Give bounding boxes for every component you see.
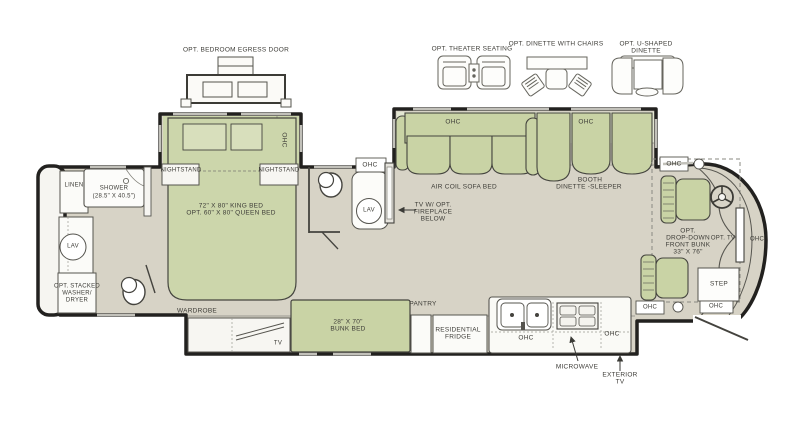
label-bunk-bed: BUNK BED <box>330 326 365 333</box>
label-galley-ohc-right: OHC <box>604 331 619 338</box>
label-galley-ohc-left: OHC <box>518 335 533 342</box>
label-washer-dryer: DRYER <box>66 298 88 305</box>
label-residential-fridge: FRIDGE <box>445 334 471 341</box>
label-opt-bedroom-egress-door: OPT. BEDROOM EGRESS DOOR <box>183 47 289 54</box>
label-opt-u-shaped-dinette: DINETTE <box>631 48 661 55</box>
label-shower: SHOWER <box>100 186 129 193</box>
label-tv-fireplace: BELOW <box>421 216 446 223</box>
label-front-bunk: FRONT BUNK <box>666 242 711 249</box>
label-exterior-tv: EXTERIOR <box>602 372 637 379</box>
label-pantry: PANTRY <box>409 301 436 308</box>
label-residential-fridge: RESIDENTIAL <box>435 327 480 334</box>
label-wardrobe: WARDROBE <box>177 308 217 315</box>
label-entry-ohc-left: OHC <box>643 305 657 312</box>
label-sofa-ohc: OHC <box>445 119 460 126</box>
label-front-bunk: DROP-DOWN <box>666 235 710 242</box>
label-air-coil-sofa-bed: AIR COIL SOFA BED <box>431 184 497 191</box>
label-mid-lav: LAV <box>363 208 375 215</box>
label-nightstand-left: NIGHTSTAND <box>160 168 201 175</box>
label-opt-tv: OPT. TV <box>711 236 735 243</box>
label-opt-dinette-with-chairs: OPT. DINETTE WITH CHAIRS <box>509 41 604 48</box>
label-nightstand-right: NIGHTSTAND <box>258 168 299 175</box>
label-booth-ohc: OHC <box>578 119 593 126</box>
label-tv-fireplace: FIREPLACE <box>414 209 452 216</box>
label-tv-fireplace: TV W/ OPT. <box>415 202 452 209</box>
label-opt-theater-seating: OPT. THEATER SEATING <box>432 46 513 53</box>
label-step: STEP <box>710 281 728 288</box>
label-front-bunk: OPT. <box>680 228 695 235</box>
label-entry-ohc-right: OHC <box>709 304 723 311</box>
label-front-bunk: 33" X 76" <box>673 249 702 256</box>
label-cab-ohc: OHC <box>666 161 681 168</box>
label-shower-size: (28.5" X 40.5") <box>93 194 136 201</box>
label-king-bed: 72" X 80" KING BED <box>199 203 263 210</box>
label-booth-dinette: BOOTH <box>578 177 602 184</box>
label-booth-dinette: DINETTE -SLEEPER <box>556 184 622 191</box>
rv-floorplan: OPT. BEDROOM EGRESS DOOR OPT. THEATER SE… <box>0 0 800 421</box>
label-king-bed: OPT. 60" X 80" QUEEN BED <box>186 210 275 217</box>
label-linen: LINEN <box>65 183 84 190</box>
label-bedroom-slide-ohc: OHC <box>281 132 288 147</box>
label-opt-u-shaped-dinette: OPT. U-SHAPED <box>619 41 672 48</box>
label-bunk-bed: 28" X 70" <box>333 319 362 326</box>
floorplan-labels: OPT. BEDROOM EGRESS DOOR OPT. THEATER SE… <box>0 0 800 421</box>
label-rear-lav: LAV <box>67 244 79 251</box>
label-washer-dryer: OPT. STACKED <box>54 284 100 291</box>
label-bedroom-tv: TV <box>274 341 282 348</box>
label-mid-bath-ohc: OHC <box>362 162 377 169</box>
label-exterior-tv: TV <box>616 379 625 386</box>
label-dash-ohc: OHC <box>750 237 764 244</box>
label-washer-dryer: WASHER/ <box>62 291 92 298</box>
label-microwave: MICROWAVE <box>556 364 598 371</box>
